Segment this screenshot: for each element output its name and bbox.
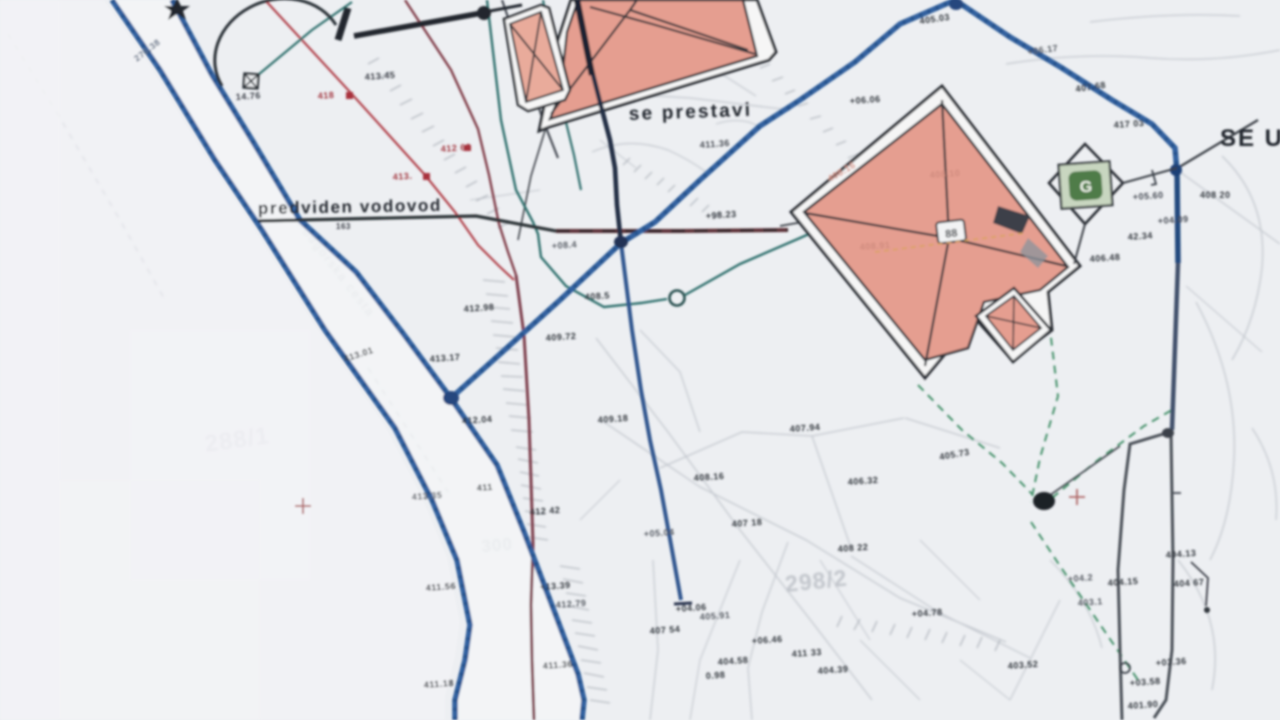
svg-text:408 20: 408 20 [1200, 190, 1231, 200]
svg-text:0.98: 0.98 [705, 670, 725, 681]
svg-text:+04.2: +04.2 [1067, 572, 1093, 584]
svg-text:408.10: 408.10 [929, 168, 960, 180]
svg-text:403.52: 403.52 [1007, 659, 1038, 671]
svg-text:408.91: 408.91 [859, 240, 890, 252]
svg-text:408 22: 408 22 [837, 542, 868, 554]
svg-text:404.15: 404.15 [1107, 576, 1138, 588]
svg-text:404.58: 404.58 [717, 655, 748, 667]
svg-text:+08.4: +08.4 [551, 239, 577, 251]
svg-text:+06.46: +06.46 [751, 634, 782, 646]
svg-text:413.45: 413.45 [364, 70, 395, 82]
svg-text:417 03: 417 03 [1113, 118, 1144, 130]
svg-text:405.91: 405.91 [699, 610, 730, 622]
svg-text:407 18: 407 18 [731, 517, 762, 529]
svg-text:14.76: 14.76 [235, 90, 261, 102]
svg-text:413.17: 413.17 [429, 352, 460, 364]
svg-text:401.90: 401.90 [1127, 699, 1158, 711]
svg-text:413.: 413. [392, 171, 412, 182]
svg-text:+03.58: +03.58 [1129, 676, 1160, 688]
svg-text:406.32: 406.32 [847, 475, 878, 487]
svg-text:411: 411 [476, 482, 493, 493]
svg-text:411.56: 411.56 [425, 581, 456, 593]
svg-text:406.48: 406.48 [1089, 252, 1120, 264]
svg-text:+03.36: +03.36 [1155, 656, 1186, 668]
svg-text:predviden vodovod: predviden vodovod [258, 196, 442, 218]
svg-text:SE U: SE U [1220, 125, 1280, 152]
svg-text:418: 418 [317, 90, 334, 101]
svg-text:409.72: 409.72 [545, 331, 576, 343]
svg-text:411 33: 411 33 [791, 647, 822, 659]
svg-text:+04.09: +04.09 [1157, 214, 1188, 226]
svg-text:+98.23: +98.23 [705, 209, 736, 221]
svg-text:404.13: 404.13 [1165, 548, 1196, 560]
svg-text:412 63: 412 63 [440, 142, 471, 154]
svg-text:+13.39: +13.39 [539, 580, 570, 592]
svg-text:403.1: 403.1 [1077, 596, 1103, 608]
svg-text:411.36: 411.36 [699, 138, 730, 150]
svg-text:404.39: 404.39 [817, 664, 848, 676]
svg-text:+05.60: +05.60 [1132, 190, 1163, 202]
svg-text:412.98: 412.98 [463, 302, 494, 314]
svg-text:88: 88 [945, 227, 959, 240]
svg-text:411.18: 411.18 [423, 678, 454, 690]
svg-text:408.5: 408.5 [584, 290, 610, 302]
svg-text:412.04: 412.04 [461, 414, 492, 426]
svg-text:se prestavi: se prestavi [628, 100, 752, 125]
svg-text:412 42: 412 42 [529, 505, 560, 517]
svg-text:409.18: 409.18 [597, 413, 628, 425]
svg-text:+06.06: +06.06 [849, 94, 880, 106]
svg-text:407.94: 407.94 [789, 422, 820, 434]
svg-text:408.16: 408.16 [693, 471, 724, 483]
svg-text:+05.04: +05.04 [643, 527, 674, 539]
svg-text:412.79: 412.79 [555, 598, 586, 610]
svg-text:+04.78: +04.78 [911, 607, 942, 619]
svg-text:163: 163 [336, 222, 351, 231]
svg-text:404 67: 404 67 [1173, 577, 1204, 589]
svg-text:G: G [1080, 179, 1092, 196]
svg-text:407 54: 407 54 [649, 624, 680, 636]
svg-text:413.35: 413.35 [411, 490, 442, 502]
svg-text:42.34: 42.34 [1127, 230, 1153, 242]
svg-text:411.36: 411.36 [542, 659, 573, 671]
